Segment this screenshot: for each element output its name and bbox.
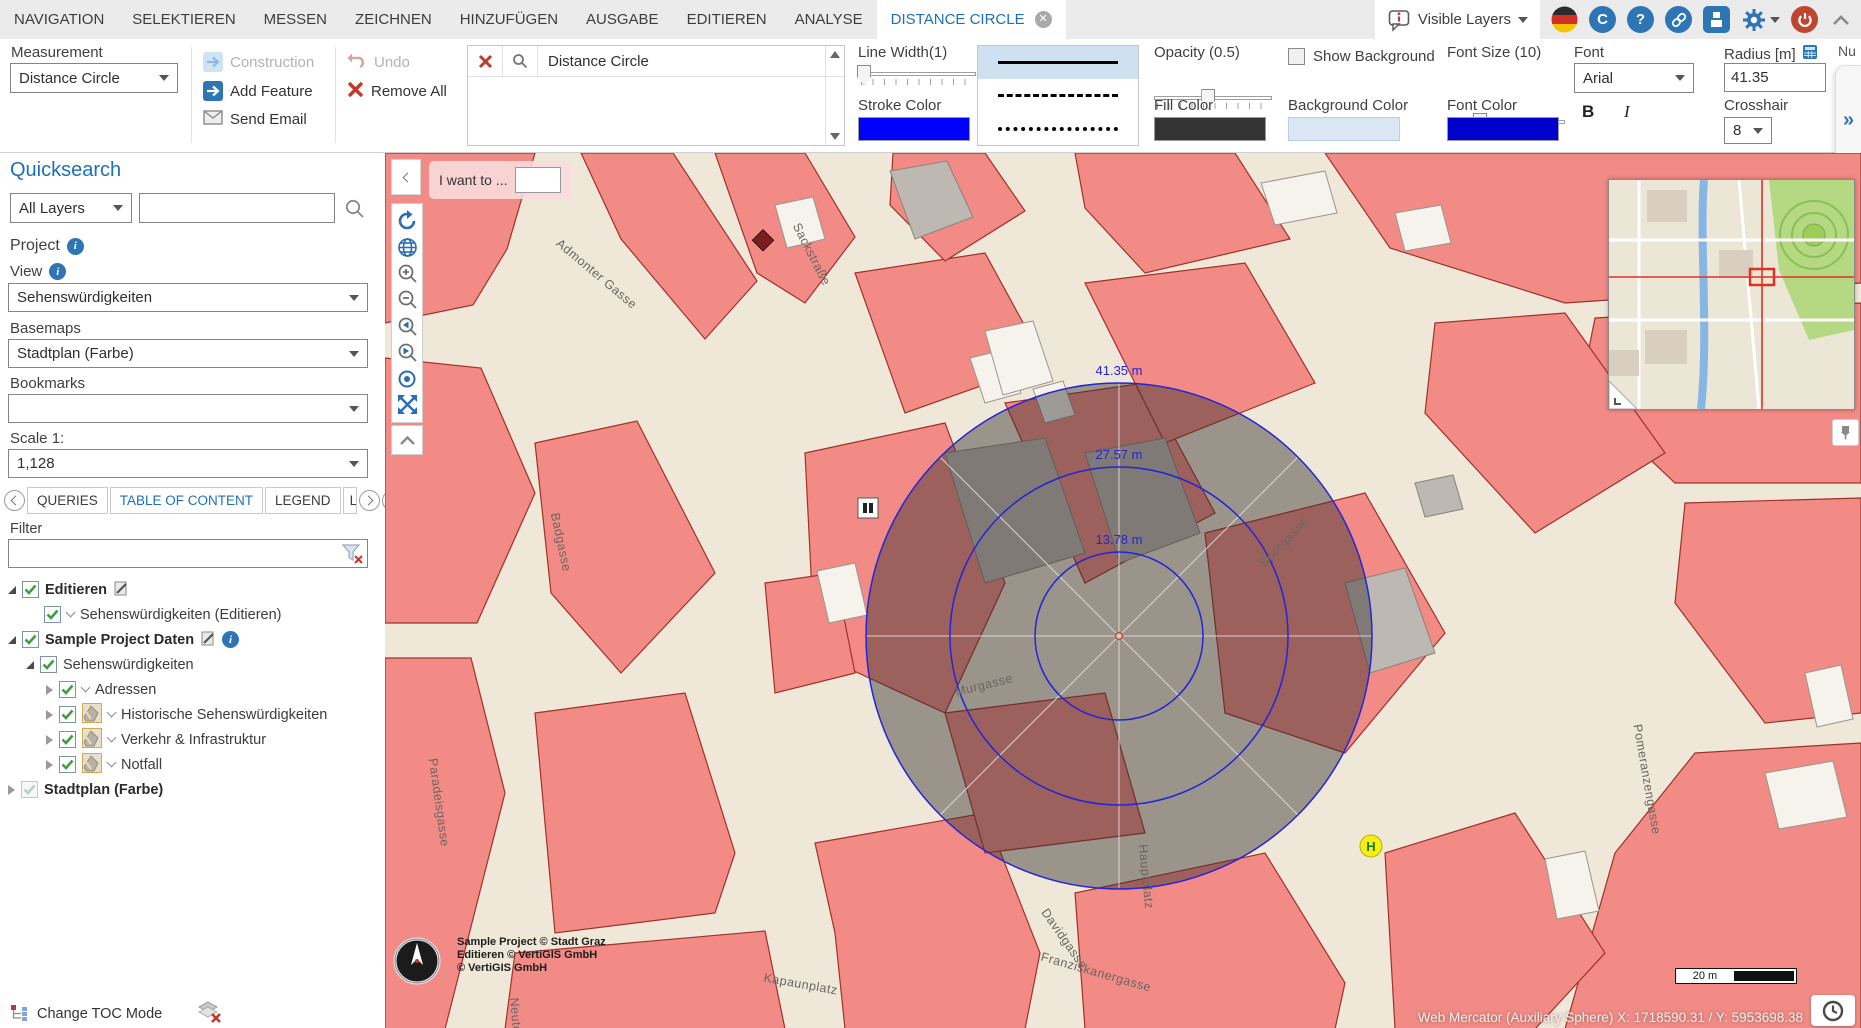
measurement-value: Distance Circle bbox=[19, 70, 120, 87]
history-clock-button[interactable] bbox=[1811, 995, 1855, 1026]
layer-select-value: All Layers bbox=[19, 200, 85, 217]
full-extent-icon[interactable] bbox=[395, 393, 419, 417]
application-window: NAVIGATION SELEKTIEREN MESSEN ZEICHNEN H… bbox=[0, 0, 1861, 1028]
chevron-down-icon bbox=[1675, 75, 1685, 81]
radius-row: Radius [m] bbox=[1724, 44, 1818, 65]
undo-icon bbox=[347, 52, 367, 72]
show-background-row: Show Background bbox=[1288, 48, 1435, 65]
view-info-icon[interactable]: i bbox=[49, 263, 66, 280]
stroke-color-label: Stroke Color bbox=[858, 97, 941, 115]
clear-filter-icon[interactable] bbox=[342, 544, 364, 569]
add-feature-button[interactable]: Add Feature bbox=[203, 81, 313, 101]
refresh-icon[interactable] bbox=[395, 209, 419, 233]
basemaps-value: Stadtplan (Farbe) bbox=[17, 345, 134, 362]
scale-value: 1,128 bbox=[17, 455, 55, 472]
chevron-down-icon[interactable] bbox=[107, 733, 117, 743]
circle-radius-label: 13.78 m bbox=[1096, 532, 1143, 547]
help-icon[interactable]: ? bbox=[1627, 6, 1654, 33]
font-color-label: Font Color bbox=[1447, 97, 1517, 115]
settings-gear-icon[interactable] bbox=[1741, 7, 1780, 33]
tab-distance-circle-label: DISTANCE CIRCLE bbox=[891, 11, 1025, 28]
toc-label[interactable]: Sample Project Daten bbox=[45, 632, 194, 648]
undo-button[interactable]: Undo bbox=[347, 52, 410, 72]
chevron-down-icon bbox=[1518, 17, 1528, 23]
font-value: Arial bbox=[1583, 70, 1613, 87]
line-style-dashed[interactable] bbox=[978, 79, 1138, 112]
info-icon[interactable]: i bbox=[222, 631, 239, 648]
save-icon[interactable] bbox=[1703, 6, 1730, 33]
tab-queries[interactable]: QUERIES bbox=[27, 487, 108, 514]
chevron-down-icon[interactable] bbox=[107, 758, 117, 768]
table-of-content-tree: Editieren Sehenswürdigkeiten (Editieren)… bbox=[8, 577, 378, 802]
globe-icon[interactable] bbox=[395, 235, 419, 259]
chevron-down-icon bbox=[349, 351, 359, 357]
toc-label[interactable]: Adressen bbox=[95, 682, 156, 698]
expander-closed-icon[interactable] bbox=[46, 685, 53, 695]
pin-overview-button[interactable] bbox=[1832, 419, 1859, 446]
collapse-sidebar-button[interactable] bbox=[391, 159, 421, 195]
tab-clipped[interactable]: L bbox=[343, 487, 357, 514]
share-link-icon[interactable] bbox=[1665, 6, 1692, 33]
toc-label[interactable]: Historische Sehenswürdigkeiten bbox=[121, 707, 327, 723]
calculator-icon[interactable] bbox=[1802, 44, 1818, 65]
toc-row-verkehr[interactable]: Verkehr & Infrastruktur bbox=[8, 727, 378, 752]
coordinate-status: Web Mercator (Auxiliary Sphere) X: 17185… bbox=[1418, 1010, 1803, 1025]
tab-ausgabe[interactable]: AUSGABE bbox=[572, 0, 673, 39]
checkbox-checked[interactable] bbox=[40, 656, 57, 673]
toc-row-stadtplan[interactable]: Stadtplan (Farbe) bbox=[8, 777, 378, 802]
project-info-icon[interactable]: i bbox=[67, 238, 84, 255]
view-select[interactable]: Sehenswürdigkeiten bbox=[8, 283, 368, 312]
i-want-to-widget: I want to ... bbox=[429, 161, 571, 199]
project-label: Project bbox=[10, 237, 60, 255]
expander-open-icon[interactable] bbox=[8, 636, 16, 644]
line-width-slider[interactable] bbox=[858, 64, 976, 88]
chevron-down-icon[interactable] bbox=[66, 608, 76, 618]
layer-thumbnail-icon[interactable] bbox=[82, 753, 102, 777]
zoom-in-icon[interactable] bbox=[395, 262, 419, 286]
expander-closed-icon[interactable] bbox=[46, 735, 53, 745]
font-label: Font bbox=[1574, 44, 1604, 62]
sidebar-panel: Quicksearch All Layers Project i View i … bbox=[0, 153, 385, 1028]
view-label: View bbox=[10, 263, 42, 280]
tab-scroll-right-icon[interactable] bbox=[359, 490, 380, 511]
logout-power-icon[interactable] bbox=[1791, 6, 1818, 33]
italic-button[interactable]: I bbox=[1624, 102, 1630, 122]
filter-input[interactable] bbox=[8, 539, 368, 568]
shape-list: Distance Circle bbox=[467, 45, 845, 146]
map-toolbar bbox=[391, 203, 423, 423]
font-select[interactable]: Arial bbox=[1574, 63, 1694, 93]
background-color-label: Background Color bbox=[1288, 97, 1408, 115]
clear-selection-layers-icon[interactable] bbox=[198, 1001, 222, 1027]
background-color-swatch[interactable] bbox=[1288, 117, 1400, 141]
checkbox-checked[interactable] bbox=[59, 756, 76, 773]
line-style-dotted[interactable] bbox=[978, 112, 1138, 145]
line-width-label: Line Width(1) bbox=[858, 44, 947, 62]
tab-distance-circle[interactable]: DISTANCE CIRCLE ✕ bbox=[877, 0, 1066, 39]
scroll-up-icon[interactable] bbox=[830, 51, 840, 58]
tab-editieren[interactable]: EDITIEREN bbox=[673, 0, 781, 39]
line-style-list bbox=[977, 45, 1139, 146]
scale-select[interactable]: 1,128 bbox=[8, 449, 368, 478]
chevron-up-icon bbox=[400, 436, 415, 445]
checkbox-checked[interactable] bbox=[59, 731, 76, 748]
layer-thumbnail-icon[interactable] bbox=[82, 728, 102, 752]
fill-color-swatch[interactable] bbox=[1154, 117, 1266, 141]
show-background-label: Show Background bbox=[1313, 48, 1435, 65]
shape-list-scrollbar[interactable] bbox=[825, 46, 844, 145]
chevron-down-icon bbox=[1770, 17, 1780, 23]
double-chevron-right-icon: » bbox=[1843, 109, 1854, 132]
view-value: Sehenswürdigkeiten bbox=[17, 289, 152, 306]
checkbox-checked[interactable] bbox=[59, 706, 76, 723]
opacity-label: Opacity (0.5) bbox=[1154, 44, 1240, 62]
toc-row-sehensw-editieren[interactable]: Sehenswürdigkeiten (Editieren) bbox=[8, 602, 378, 627]
menu-bar: NAVIGATION SELEKTIEREN MESSEN ZEICHNEN H… bbox=[0, 0, 1861, 39]
zoom-previous-icon[interactable] bbox=[395, 314, 419, 338]
map-copyright: Sample Project © Stadt Graz Editieren © … bbox=[457, 936, 606, 975]
tab-scroll-left-icon[interactable] bbox=[4, 490, 25, 511]
edit-icon[interactable] bbox=[113, 580, 129, 600]
chevron-down-icon bbox=[349, 406, 359, 412]
i-want-to-label: I want to ... bbox=[439, 172, 507, 188]
zoom-next-icon[interactable] bbox=[395, 340, 419, 364]
checkbox-checked[interactable] bbox=[44, 606, 61, 623]
tab-analyse[interactable]: ANALYSE bbox=[781, 0, 877, 39]
expander-closed-icon[interactable] bbox=[46, 760, 53, 770]
ribbon-toolbar: Measurement Distance Circle Construction… bbox=[0, 39, 1861, 153]
delete-shape-icon[interactable] bbox=[468, 46, 503, 76]
chevron-down-icon bbox=[159, 75, 169, 81]
scale-label: Scale 1: bbox=[10, 430, 64, 447]
expander-open-icon[interactable] bbox=[8, 586, 16, 594]
i-want-to-input[interactable] bbox=[515, 167, 561, 193]
font-size-label: Font Size (10) bbox=[1447, 44, 1541, 62]
monument-marker bbox=[858, 498, 878, 518]
chevron-down-icon bbox=[349, 461, 359, 467]
measurement-select[interactable]: Distance Circle bbox=[10, 63, 178, 93]
quicksearch-input[interactable] bbox=[139, 193, 335, 223]
tab-table-of-content[interactable]: TABLE OF CONTENT bbox=[110, 487, 263, 514]
toc-label[interactable]: Sehenswürdigkeiten (Editieren) bbox=[80, 607, 282, 623]
add-feature-icon bbox=[203, 81, 223, 101]
svg-text:H: H bbox=[1366, 839, 1375, 854]
checkbox-disabled[interactable] bbox=[21, 781, 38, 798]
scroll-down-icon[interactable] bbox=[830, 133, 840, 140]
hydrant-marker: H bbox=[1360, 835, 1382, 857]
expander-open-icon[interactable] bbox=[26, 661, 34, 669]
visible-layers-label: Visible Layers bbox=[1418, 11, 1511, 28]
chevron-down-icon bbox=[1753, 128, 1763, 134]
language-german-icon[interactable] bbox=[1551, 6, 1578, 33]
tab-legend[interactable]: LEGEND bbox=[265, 487, 341, 514]
close-tab-icon[interactable]: ✕ bbox=[1035, 11, 1052, 28]
filter-label: Filter bbox=[10, 521, 42, 537]
pushpin-icon bbox=[1838, 425, 1853, 440]
bold-button[interactable]: B bbox=[1582, 102, 1594, 122]
stroke-color-swatch[interactable] bbox=[858, 117, 970, 141]
checkbox-checked[interactable] bbox=[22, 581, 39, 598]
toc-row-notfall[interactable]: Notfall bbox=[8, 752, 378, 777]
chevron-down-icon[interactable] bbox=[81, 683, 91, 693]
locate-shape-icon[interactable] bbox=[503, 46, 538, 76]
layer-thumbnail-icon[interactable] bbox=[82, 703, 102, 727]
scale-bar-label: 20 m bbox=[1676, 969, 1734, 983]
radius-label: Radius [m] bbox=[1724, 46, 1796, 63]
construction-button[interactable]: Construction bbox=[203, 52, 314, 72]
copyright-icon[interactable]: C bbox=[1589, 6, 1616, 33]
toc-label[interactable]: Notfall bbox=[121, 757, 162, 773]
radius-input[interactable] bbox=[1724, 63, 1826, 92]
toc-label[interactable]: Sehenswürdigkeiten bbox=[63, 657, 194, 673]
fill-color-label: Fill Color bbox=[1154, 97, 1213, 115]
shape-list-item[interactable]: Distance Circle bbox=[538, 46, 825, 76]
crosshair-select[interactable]: 8 bbox=[1724, 117, 1772, 144]
tab-selektieren[interactable]: SELEKTIEREN bbox=[118, 0, 249, 39]
toc-row-sample-project[interactable]: Sample Project Daten i bbox=[8, 627, 378, 652]
panel-tabstrip: QUERIES TABLE OF CONTENT LEGEND L bbox=[4, 487, 403, 514]
tab-hinzufuegen[interactable]: HINZUFÜGEN bbox=[446, 0, 572, 39]
search-icon[interactable] bbox=[344, 198, 365, 224]
bookmarks-label: Bookmarks bbox=[10, 375, 85, 392]
overview-map[interactable] bbox=[1608, 179, 1855, 410]
chevron-down-icon bbox=[349, 295, 359, 301]
crosshair-label: Crosshair bbox=[1724, 97, 1788, 115]
clock-icon bbox=[1822, 1000, 1844, 1022]
font-color-swatch[interactable] bbox=[1447, 117, 1559, 141]
email-icon bbox=[203, 110, 223, 129]
quicksearch-title: Quicksearch bbox=[10, 159, 121, 182]
remove-all-x-icon bbox=[347, 81, 364, 102]
construction-icon bbox=[203, 52, 223, 72]
remove-all-button[interactable]: Remove All bbox=[347, 81, 447, 102]
chevron-down-icon bbox=[113, 205, 123, 211]
callout-info-icon bbox=[1387, 8, 1411, 32]
tab-zeichnen[interactable]: ZEICHNEN bbox=[341, 0, 446, 39]
crosshair-value: 8 bbox=[1733, 122, 1741, 139]
north-compass[interactable] bbox=[395, 939, 439, 983]
basemaps-label: Basemaps bbox=[10, 320, 81, 337]
measurement-label: Measurement bbox=[11, 44, 103, 62]
toc-label[interactable]: Verkehr & Infrastruktur bbox=[121, 732, 266, 748]
expander-closed-icon[interactable] bbox=[46, 710, 53, 720]
send-email-button[interactable]: Send Email bbox=[203, 110, 307, 129]
toc-row-adressen[interactable]: Adressen bbox=[8, 677, 378, 702]
basemaps-select[interactable]: Stadtplan (Farbe) bbox=[8, 339, 368, 368]
clipped-panel-label: Nu bbox=[1838, 43, 1858, 59]
tab-navigation[interactable]: NAVIGATION bbox=[0, 0, 118, 39]
line-style-solid[interactable] bbox=[978, 46, 1138, 79]
map-viewport[interactable]: 41.35 m 27.57 m 13.78 m Sackstraße Admon… bbox=[385, 153, 1861, 1028]
collapse-ribbon-icon[interactable] bbox=[1829, 8, 1853, 32]
scale-bar: 20 m bbox=[1675, 968, 1797, 984]
edit-icon[interactable] bbox=[200, 630, 216, 650]
bookmarks-select[interactable] bbox=[8, 394, 368, 423]
quicksearch-layer-select[interactable]: All Layers bbox=[10, 193, 132, 223]
toc-row-historische[interactable]: Historische Sehenswürdigkeiten bbox=[8, 702, 378, 727]
map-toolbar-expand[interactable] bbox=[391, 425, 423, 455]
chevron-left-icon bbox=[402, 172, 412, 182]
circle-radius-label: 41.35 m bbox=[1096, 363, 1143, 378]
change-toc-mode-button[interactable]: Change TOC Mode bbox=[37, 1006, 162, 1022]
toc-mode-icon bbox=[10, 1003, 29, 1025]
visible-layers-dropdown[interactable]: Visible Layers bbox=[1375, 0, 1540, 39]
show-background-checkbox[interactable] bbox=[1288, 48, 1305, 65]
checkbox-checked[interactable] bbox=[59, 681, 76, 698]
tab-messen[interactable]: MESSEN bbox=[250, 0, 341, 39]
chevron-down-icon[interactable] bbox=[107, 708, 117, 718]
toc-row-sehenswuerdigkeiten[interactable]: Sehenswürdigkeiten bbox=[8, 652, 378, 677]
zoom-out-icon[interactable] bbox=[395, 288, 419, 312]
toc-row-editieren[interactable]: Editieren bbox=[8, 577, 378, 602]
expander-closed-icon[interactable] bbox=[8, 785, 15, 795]
checkbox-checked[interactable] bbox=[22, 631, 39, 648]
circle-radius-label: 27.57 m bbox=[1096, 447, 1143, 462]
center-target-icon[interactable] bbox=[395, 367, 419, 391]
toc-label[interactable]: Editieren bbox=[45, 582, 107, 598]
toc-label[interactable]: Stadtplan (Farbe) bbox=[44, 782, 163, 798]
